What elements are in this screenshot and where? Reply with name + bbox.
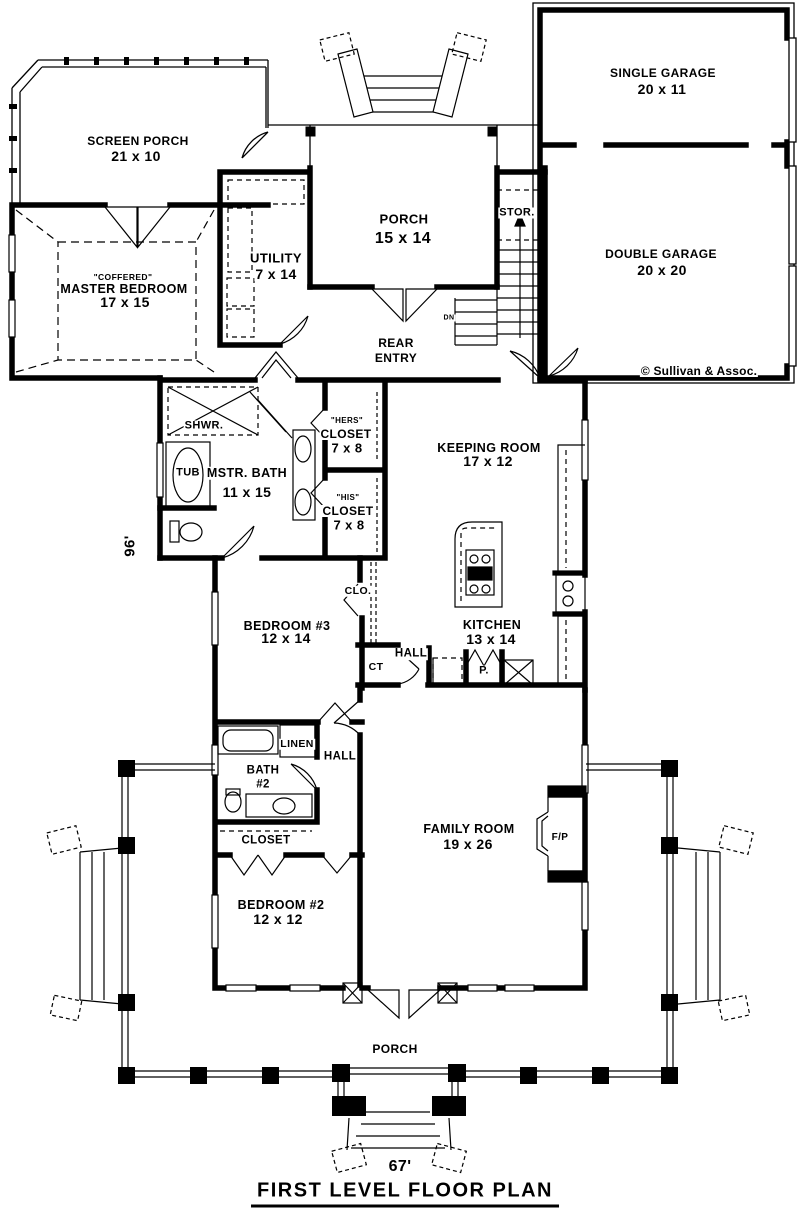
- label-height-dimension: 96': [123, 534, 138, 557]
- label-stairs-dn: DN: [443, 315, 456, 322]
- label-utility-size: 7 x 14: [254, 267, 297, 281]
- label-utility-name: UTILITY: [249, 252, 303, 265]
- label-his-closet-note: "HIS": [336, 494, 361, 502]
- rear-entry-steps: [320, 33, 486, 117]
- label-rear-entry-2: ENTRY: [374, 352, 418, 364]
- label-tub: TUB: [175, 468, 201, 479]
- label-ct-closet: CT: [368, 662, 385, 673]
- label-master-bedroom-size: 17 x 15: [99, 295, 151, 309]
- label-hall-bath: HALL: [323, 751, 357, 763]
- label-bedroom3-size: 12 x 14: [260, 631, 312, 645]
- floor-plan-page: SINGLE GARAGE 20 x 11 DOUBLE GARAGE 20 x…: [0, 0, 800, 1217]
- vanity-fixture: [293, 430, 315, 520]
- label-clo-closet: CLO.: [344, 586, 373, 597]
- label-master-bath-size: 11 x 15: [222, 485, 273, 499]
- label-kitchen-name: KITCHEN: [462, 619, 522, 632]
- label-his-closet-name: CLOSET: [321, 505, 374, 517]
- garage-door-single: [789, 38, 796, 142]
- label-hall-kitchen: HALL: [394, 648, 428, 660]
- label-rear-porch-size: 15 x 14: [374, 231, 432, 247]
- label-front-porch: PORCH: [371, 1043, 418, 1055]
- label-rear-porch-name: PORCH: [379, 213, 430, 226]
- label-master-bedroom-note: "COFFERED": [93, 273, 154, 282]
- label-keeping-room-size: 17 x 12: [462, 454, 514, 468]
- kitchen-counters: [553, 445, 585, 685]
- garage-door-double-1: [789, 166, 796, 264]
- label-pantry: P.: [478, 666, 490, 677]
- label-double-garage-name: DOUBLE GARAGE: [604, 248, 718, 260]
- screen-porch-walls: [12, 60, 268, 205]
- label-bedroom2-name: BEDROOM #2: [237, 899, 326, 912]
- label-copyright: © Sullivan & Assoc.: [640, 365, 758, 377]
- toilet-fixture: [170, 521, 202, 542]
- label-shower: SHWR.: [184, 421, 225, 432]
- label-family-room-size: 19 x 26: [442, 837, 494, 851]
- family-room-walls: [343, 690, 588, 1018]
- garage-door-double-2: [789, 266, 796, 366]
- label-his-closet-size: 7 x 8: [333, 519, 366, 532]
- label-storage: STOR.: [498, 208, 535, 219]
- page-title: FIRST LEVEL FLOOR PLAN: [251, 1181, 559, 1208]
- label-single-garage-size: 20 x 11: [637, 82, 688, 96]
- floor-plan-drawing: [0, 0, 800, 1217]
- garage-walls: [533, 3, 796, 383]
- label-bedroom2-size: 12 x 12: [252, 912, 304, 926]
- porch-columns: [118, 760, 678, 1116]
- screen-porch-door: [242, 132, 268, 158]
- label-double-garage-size: 20 x 20: [636, 263, 688, 277]
- label-hers-closet-note: "HERS": [330, 417, 364, 425]
- label-family-room-name: FAMILY ROOM: [422, 823, 515, 836]
- label-screen-porch-name: SCREEN PORCH: [86, 135, 189, 147]
- label-hers-closet-name: CLOSET: [319, 428, 372, 440]
- label-rear-entry-1: REAR: [377, 337, 415, 349]
- label-kitchen-size: 13 x 14: [465, 632, 517, 646]
- hall-walls: [334, 558, 419, 985]
- label-hers-closet-size: 7 x 8: [331, 442, 364, 455]
- label-single-garage-name: SINGLE GARAGE: [609, 67, 717, 79]
- label-bath2-1: BATH: [246, 765, 281, 777]
- range-fixture: [556, 575, 585, 612]
- label-screen-porch-size: 21 x 10: [110, 149, 162, 163]
- label-closet2: CLOSET: [240, 835, 291, 847]
- label-fireplace: F/P: [551, 833, 570, 843]
- kitchen-island: [455, 522, 502, 607]
- label-linen: LINEN: [279, 739, 315, 750]
- label-bath2-2: #2: [255, 779, 271, 791]
- label-width-dimension: 67': [388, 1159, 413, 1175]
- side-steps: [47, 826, 753, 1021]
- label-master-bath-name: MSTR. BATH: [206, 467, 288, 480]
